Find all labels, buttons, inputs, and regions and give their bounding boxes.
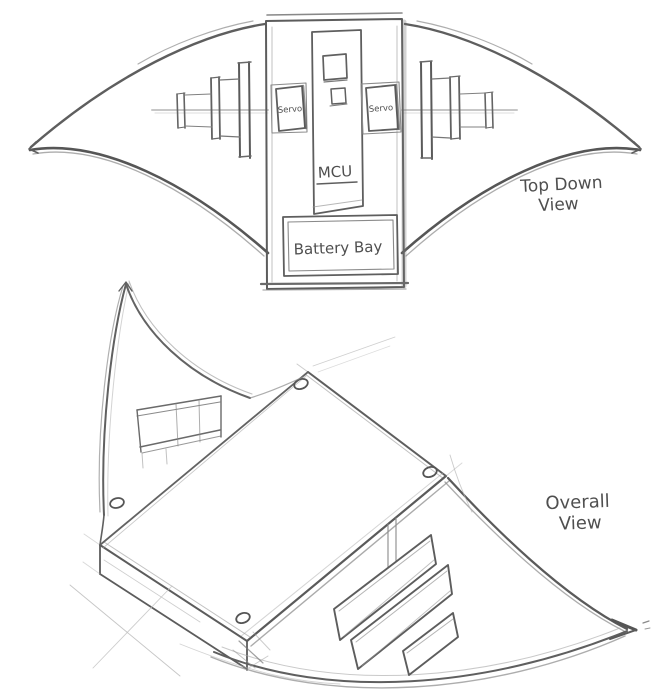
plate-edge [308, 372, 446, 476]
rib-frame-small [403, 613, 458, 675]
pencil-stroke [460, 93, 485, 94]
pencil-stroke [104, 560, 200, 622]
screw [235, 611, 251, 625]
rib-middle [450, 77, 451, 139]
view-label-line1: Overall [545, 491, 610, 514]
pencil-stroke [446, 463, 462, 476]
rib-outer [492, 93, 493, 128]
far-rib-rail [137, 396, 221, 468]
servo-right: Servo [361, 82, 401, 134]
mcu-label: MCU [317, 162, 352, 182]
construction-line [93, 586, 172, 668]
pencil-stroke [103, 376, 306, 548]
pencil-stroke [220, 136, 240, 137]
pencil-stroke [239, 641, 263, 663]
right-wing [402, 21, 641, 256]
pencil-stroke [142, 453, 143, 468]
pencil-stroke [137, 396, 221, 410]
pencil-stroke [238, 62, 251, 63]
mcu-board-outline [312, 30, 363, 214]
near-wing-ribs [334, 518, 458, 675]
pencil-stroke [451, 138, 460, 139]
pencil-stroke [297, 364, 308, 372]
pencil-stroke [239, 156, 251, 157]
pencil-stroke [645, 628, 650, 629]
construction-line [318, 346, 390, 372]
pencil-stroke [420, 61, 432, 62]
pencil-stroke [178, 127, 185, 128]
wing-leading-edge-stroke [405, 24, 639, 147]
top-down-view-drawing: MCU Servo Servo Battery [29, 13, 641, 290]
pencil-stroke [317, 182, 357, 184]
plate-edge [247, 476, 446, 641]
pencil-stroke [100, 515, 104, 545]
wing-trailing-edge-stroke [30, 148, 268, 253]
pencil-stroke [313, 200, 362, 207]
plate-edge [100, 372, 308, 545]
pencil-stroke [362, 591, 450, 666]
pencil-stroke [305, 374, 444, 479]
view-label-line2: View [559, 512, 602, 534]
rib-outer [177, 94, 178, 128]
pencil-stroke [137, 410, 141, 452]
pencil-stroke [303, 86, 306, 128]
pencil-stroke [185, 126, 212, 127]
pencil-stroke [129, 281, 252, 394]
rib-inner [431, 62, 432, 159]
rib-outer [184, 93, 185, 128]
pencil-stroke [339, 541, 430, 611]
pencil-stroke [185, 94, 211, 95]
overall-view-drawing: Overall View [70, 281, 650, 688]
far-wing [99, 281, 303, 545]
pencil-stroke [643, 621, 649, 623]
pencil-stroke [220, 79, 239, 80]
plate-side-edge [100, 574, 247, 669]
pencil-stroke [432, 78, 450, 79]
pencil-stroke [222, 628, 620, 676]
left-wing-ribs [152, 62, 268, 158]
pencil-stroke [166, 449, 167, 464]
plate-edge [100, 545, 247, 641]
left-wing [29, 21, 268, 256]
rib-middle [219, 77, 220, 139]
battery-bay: Battery Bay [283, 215, 398, 276]
pencil-stroke [253, 632, 270, 650]
servo-right-label: Servo [369, 103, 394, 115]
view-label-line2: View [538, 194, 579, 216]
sketch-canvas: MCU Servo Servo Battery [0, 0, 666, 697]
pencil-stroke [261, 283, 408, 284]
wing-tip-stroke [610, 630, 636, 639]
mcu-board: MCU [312, 30, 363, 214]
board-component-square-small [331, 88, 346, 104]
pencil-stroke [33, 152, 264, 256]
pencil-stroke [212, 138, 220, 139]
top-down-view-label: Top Down View [519, 173, 604, 217]
wing-trailing-edge-stroke [402, 148, 640, 253]
pencil-stroke [84, 534, 100, 545]
servo-left-label: Servo [278, 104, 303, 116]
near-wing [180, 455, 650, 688]
pencil-stroke [267, 13, 402, 15]
screw [109, 497, 125, 510]
construction-line [313, 337, 395, 366]
rib-inner [249, 62, 250, 158]
pencil-stroke [432, 137, 450, 138]
rib-outer [485, 93, 486, 128]
pencil-stroke [486, 127, 493, 128]
pencil-stroke [137, 402, 220, 416]
wing-membrane-stroke [126, 284, 250, 398]
servo-left: Servo [271, 83, 307, 133]
sketch-page: MCU Servo Servo Battery [0, 0, 666, 697]
pencil-stroke [344, 560, 434, 636]
pencil-stroke [83, 562, 100, 574]
wing-leading-edge-stroke [31, 24, 265, 147]
rib-middle [459, 77, 460, 139]
rib-inner [239, 63, 240, 157]
screw [422, 465, 438, 479]
right-wing-ribs [402, 61, 517, 159]
board-component-square [323, 54, 347, 80]
pencil-stroke [199, 400, 200, 442]
overall-view-label: Overall View [545, 491, 611, 535]
rib-inner [421, 62, 422, 158]
screw [293, 377, 309, 391]
rib-middle [211, 78, 212, 139]
battery-bay-label: Battery Bay [293, 237, 382, 258]
rib-frame-large [334, 535, 436, 640]
pencil-stroke [406, 152, 637, 256]
chassis-plate [70, 337, 462, 676]
pencil-stroke [396, 85, 399, 129]
view-label-line1: Top Down [519, 173, 603, 197]
